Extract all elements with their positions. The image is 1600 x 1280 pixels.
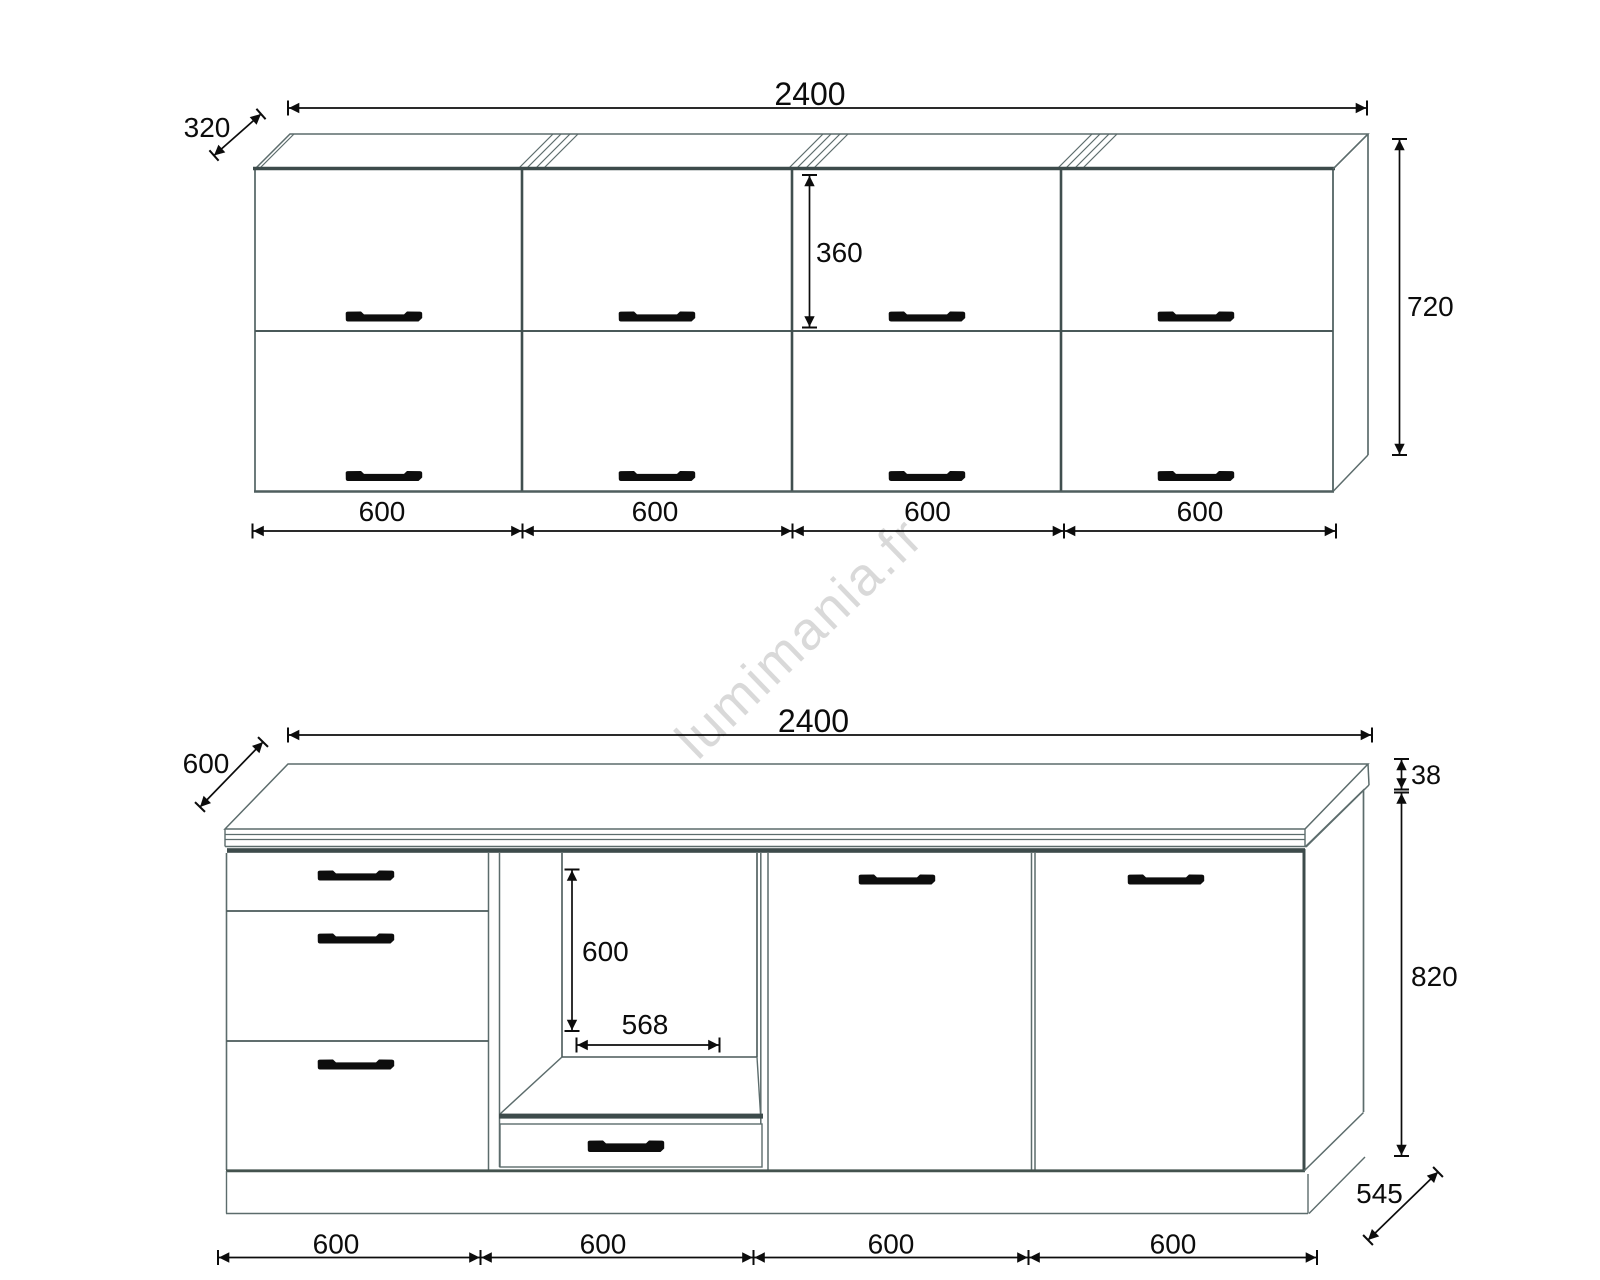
svg-text:360: 360 [816, 237, 863, 268]
svg-text:568: 568 [622, 1009, 669, 1040]
svg-text:600: 600 [632, 496, 679, 527]
svg-text:600: 600 [582, 936, 629, 967]
svg-text:600: 600 [1150, 1229, 1197, 1260]
svg-text:38: 38 [1411, 760, 1441, 790]
svg-text:2400: 2400 [774, 76, 845, 112]
svg-text:320: 320 [184, 112, 231, 143]
svg-text:720: 720 [1407, 291, 1454, 322]
svg-text:600: 600 [313, 1229, 360, 1260]
svg-text:600: 600 [1177, 496, 1224, 527]
svg-text:2400: 2400 [778, 703, 849, 739]
svg-text:820: 820 [1411, 961, 1458, 992]
svg-text:545: 545 [1356, 1178, 1403, 1209]
svg-text:600: 600 [183, 748, 230, 779]
svg-text:600: 600 [359, 496, 406, 527]
svg-text:600: 600 [868, 1229, 915, 1260]
svg-text:600: 600 [904, 496, 951, 527]
svg-text:600: 600 [580, 1229, 627, 1260]
